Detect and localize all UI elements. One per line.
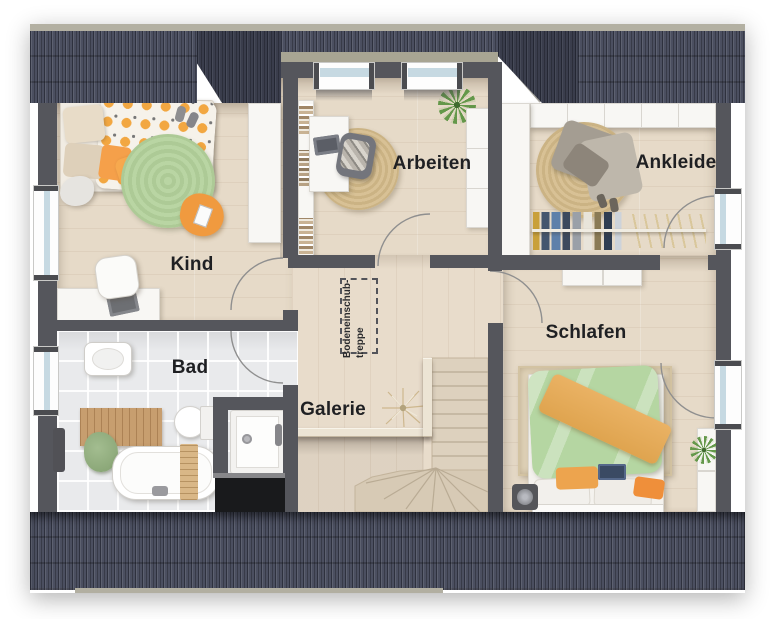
roof-ridge-strip [30, 24, 745, 31]
wall-exterior-left [38, 103, 57, 187]
window-ankleide-right [714, 188, 742, 250]
wall-ankleide-schlafen [502, 255, 660, 270]
roof-dormer-top [281, 31, 498, 52]
roof-bottom [30, 512, 745, 590]
wall-dormer-front [372, 62, 403, 78]
wall-arbeiten-hall [430, 255, 488, 268]
room-label-bad: Bad [172, 357, 209, 379]
roof-dormer-eave [281, 52, 498, 62]
wall-bad-hall [283, 385, 298, 512]
wall-arbeiten-ankleide [488, 62, 502, 271]
gallery-railing-horizontal [296, 428, 432, 437]
roof-top-right [578, 31, 745, 103]
wall-kind-arbeiten [283, 62, 298, 258]
wall-shower-top [213, 397, 283, 410]
floor-plan: Bodeneinschub- treppe [0, 0, 775, 619]
room-label-galerie: Galerie [300, 399, 366, 421]
roof-window-arbeiten [401, 62, 463, 90]
wall-kind-bad [57, 320, 292, 331]
room-label-ankleide: Ankleide [636, 152, 717, 174]
roof-top-left [30, 31, 197, 103]
wall-exterior-right [716, 428, 731, 512]
bad-radiator [53, 428, 65, 472]
room-label-kind: Kind [170, 254, 213, 276]
room-label-arbeiten: Arbeiten [393, 153, 472, 175]
wall-exterior-left [38, 278, 57, 348]
wall-exterior-right [716, 248, 731, 360]
room-label-schlafen: Schlafen [546, 322, 627, 344]
wall-shower-left [213, 410, 228, 473]
roof-gutter-strip [75, 588, 443, 593]
floor-opening-void [215, 478, 285, 512]
wall-exterior-right [716, 103, 731, 190]
dried-flowers-icon [382, 388, 424, 427]
roof-window-arbeiten [313, 62, 375, 90]
wall-kind-bad-stub [283, 310, 298, 331]
gallery-railing-stair-stringer [423, 358, 432, 437]
wall-schlafen-galerie [488, 323, 503, 512]
window-kind-left [33, 185, 59, 281]
window-schlafen-right [714, 360, 742, 430]
window-bad-left [33, 346, 59, 416]
wall-arbeiten-hall [288, 255, 375, 268]
wall-ankleide-schlafen-stub [708, 255, 716, 270]
